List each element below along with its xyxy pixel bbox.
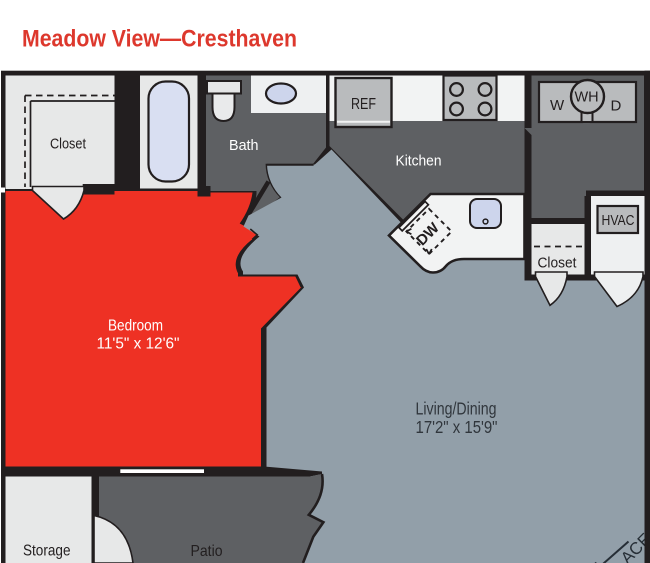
svg-text:Patio: Patio <box>191 543 223 560</box>
svg-text:Bath: Bath <box>229 137 259 154</box>
svg-text:Bedroom: Bedroom <box>108 318 163 335</box>
svg-text:Meadow View—Cresthaven: Meadow View—Cresthaven <box>22 26 297 53</box>
svg-text:17'2" x 15'9": 17'2" x 15'9" <box>416 417 498 437</box>
svg-text:Living/Dining: Living/Dining <box>416 399 497 419</box>
svg-text:WH: WH <box>575 90 599 106</box>
svg-text:Closet: Closet <box>50 136 87 153</box>
svg-text:W: W <box>550 97 565 114</box>
svg-text:Storage: Storage <box>23 543 71 560</box>
svg-text:D: D <box>611 98 622 115</box>
svg-text:REF: REF <box>351 96 376 113</box>
svg-text:11'5" x 12'6": 11'5" x 12'6" <box>97 336 180 353</box>
svg-text:Kitchen: Kitchen <box>396 153 442 170</box>
svg-text:HVAC: HVAC <box>602 212 635 229</box>
svg-text:Closet: Closet <box>538 255 578 272</box>
